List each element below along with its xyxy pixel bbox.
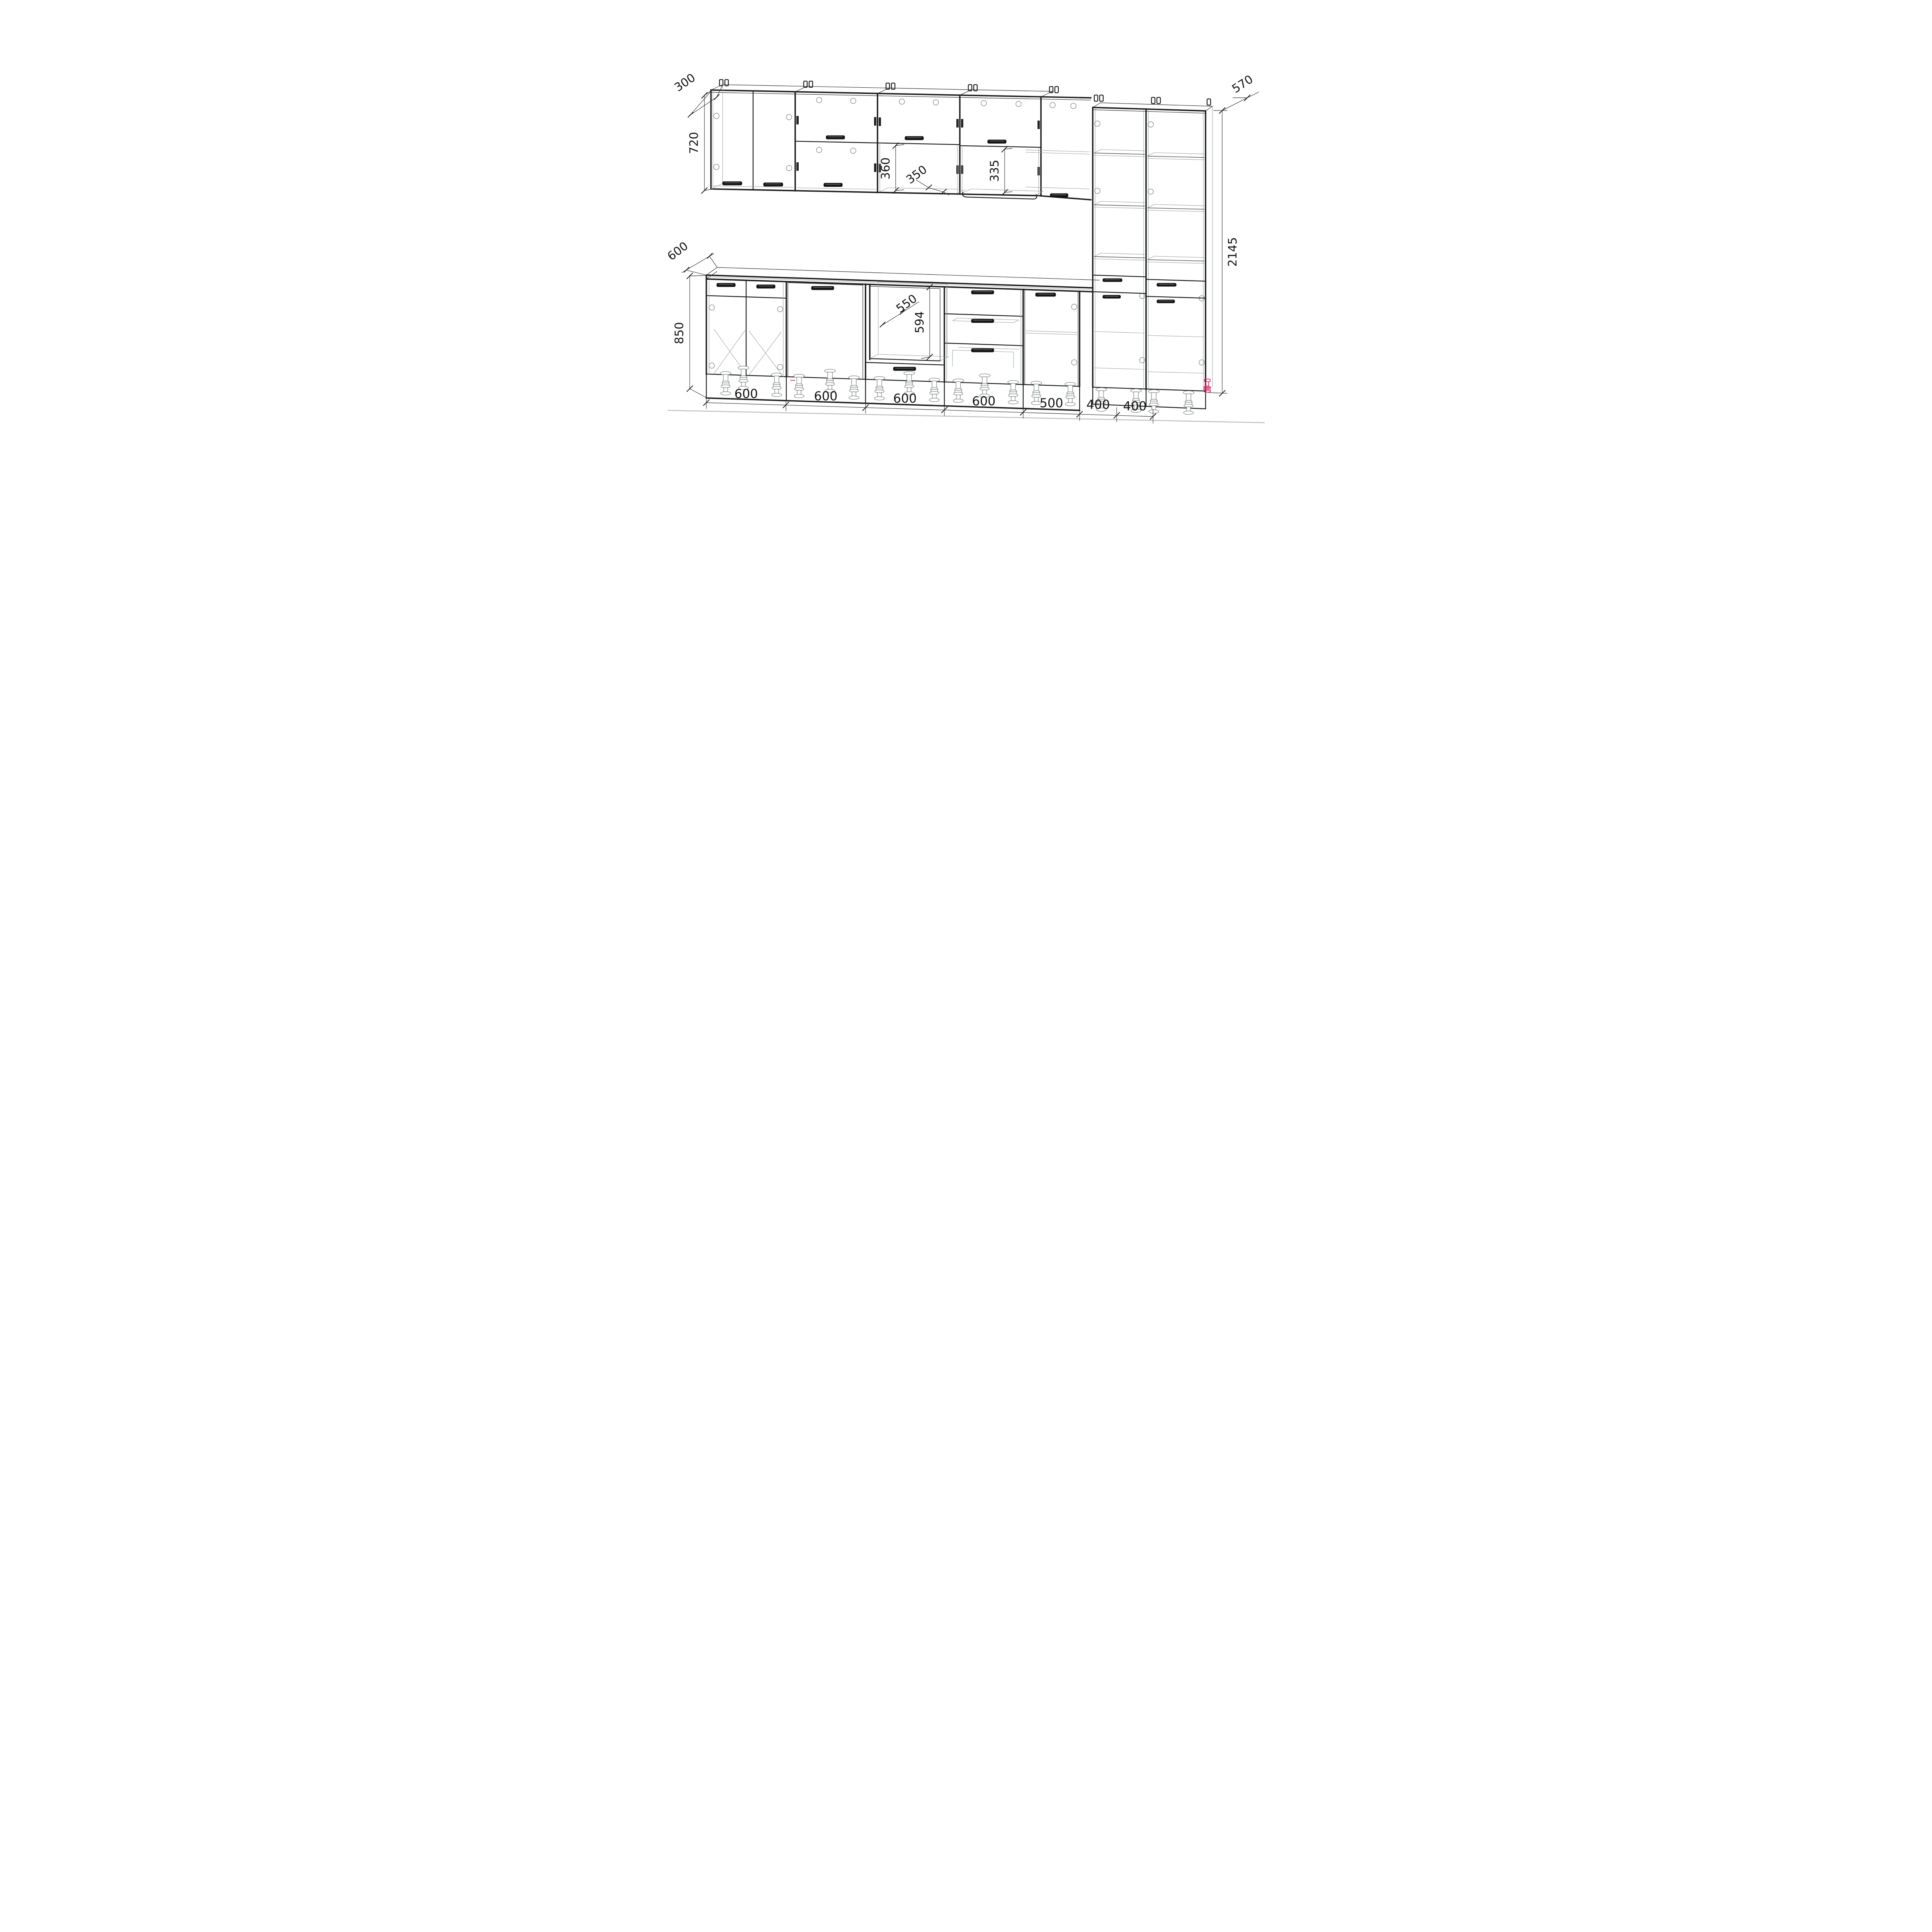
base-cabinet-1-drawer-doors [707,280,786,377]
dim-label-2145: 2145 [1226,237,1240,267]
wall-cabinet-2-flip-doors [795,94,878,192]
drawer-handle [893,367,916,371]
highlighted-foot [1204,379,1211,392]
base-cabinet-4-drawers [946,287,1022,384]
dim-label-594: 594 [913,311,927,333]
base-cabinets [706,267,1211,415]
dim-counter-depth: 600 [668,239,717,275]
kitchen-elevation-drawing: 300 720 360 350 335 [668,0,1265,488]
wall-cabinet-5-flip-door [1026,102,1091,200]
technical-drawing-sheet: 300 720 360 350 335 [668,0,1265,488]
shelf [1094,150,1145,260]
dim-label-w7: 400 [1123,399,1146,413]
drawer-handle [1157,283,1176,286]
drawer-handle [971,291,994,352]
drawer-handle [1103,279,1122,282]
dim-label-w3: 600 [893,391,917,406]
dim-tall-height: 2145 [1209,111,1240,396]
dim-open-height: 360 [879,143,904,194]
dim-label-570: 570 [1230,73,1255,96]
wall-bracket-icon [1094,95,1211,105]
tall-cabinets [1093,95,1213,409]
door-handle [811,286,834,290]
dim-label-350: 350 [903,163,929,187]
door-handle [905,136,923,140]
dim-label-335: 335 [988,160,1002,182]
dim-label-w5: 500 [1039,396,1063,410]
tall-cabinet-2-lower [1147,279,1205,373]
dim-label-w6: 400 [1086,397,1110,412]
door-handle [824,136,845,187]
dim-label-360: 360 [879,157,893,179]
door-handle [1050,194,1068,197]
door-handle [1103,295,1121,298]
door-handle [988,140,1006,143]
dim-label-w2: 600 [814,389,837,403]
dim-wall-depth: 300 [672,71,723,117]
shelf [1147,153,1204,264]
dim-oven-height: 594 [913,284,933,360]
dim-tall-depth: 570 [1213,73,1259,114]
wall-cabinets [711,80,1091,200]
wall-cabinet-1-double-door [711,85,795,191]
dim-base-height: 850 [673,273,706,398]
dim-label-w4: 600 [972,394,995,408]
base-cabinet-2-door [788,283,863,379]
tall-cabinet-1-lower [1094,275,1145,369]
wall-cabinet-4-flip-door-niche [960,97,1043,199]
dim-label-w1: 600 [734,386,758,401]
dim-niche-height: 335 [988,146,1012,196]
door-handle [1036,293,1056,296]
dim-wall-height: 720 [687,91,711,194]
dim-shelf-depth: 350 [903,163,949,195]
dim-label-850: 850 [673,322,686,344]
door-handle [1157,300,1175,303]
dim-label-300: 300 [672,71,698,95]
dim-label-720: 720 [687,132,701,154]
highlight-mark [790,380,795,381]
dim-label-600-depth: 600 [668,239,691,263]
floor-line [668,410,1265,423]
base-cabinet-5-door [1025,289,1078,386]
